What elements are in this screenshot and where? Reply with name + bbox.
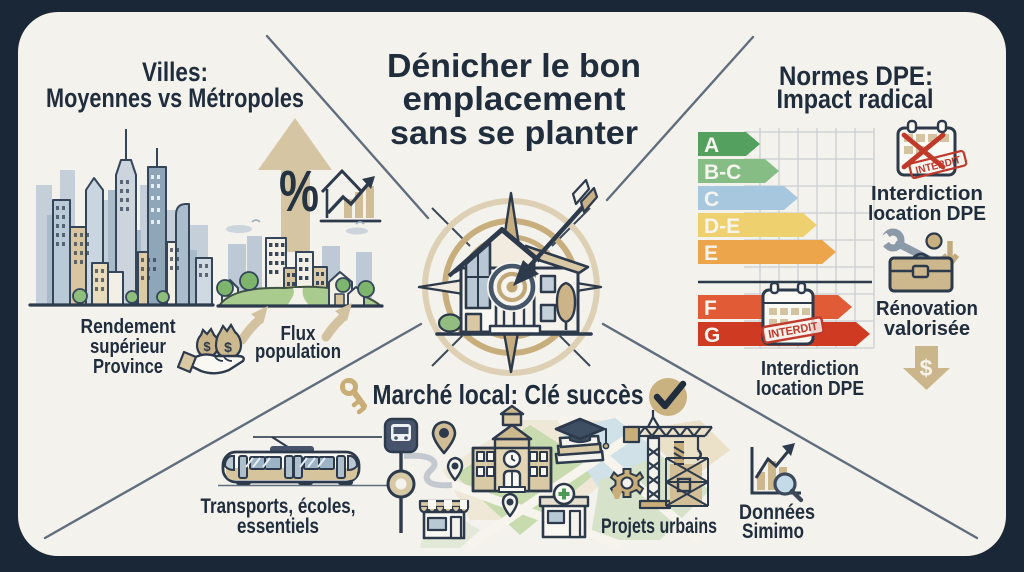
svg-text:emplacement: emplacement [403,80,626,117]
svg-text:A: A [704,134,719,157]
svg-text:D-E: D-E [704,215,740,238]
svg-text:supérieur: supérieur [90,336,166,358]
svg-text:%: % [279,159,319,224]
svg-text:Dénicher le bon: Dénicher le bon [387,47,641,84]
svg-text:sans se planter: sans se planter [390,114,638,151]
svg-text:essentiels: essentiels [237,515,319,538]
svg-text:$: $ [203,339,211,354]
svg-text:location DPE: location DPE [868,203,986,225]
svg-text:E: E [704,242,718,265]
svg-text:location DPE: location DPE [756,378,864,400]
svg-text:population: population [255,341,341,363]
svg-text:Projets urbains: Projets urbains [601,515,717,538]
svg-text:Marché local: Clé succès: Marché local: Clé succès [373,379,644,410]
svg-text:Simimo: Simimo [742,520,804,543]
svg-text:valorisée: valorisée [884,318,970,340]
svg-text:$: $ [920,355,933,381]
svg-text:Impact radical: Impact radical [777,84,934,114]
svg-text:Interdiction: Interdiction [761,358,859,380]
svg-text:F: F [704,297,717,320]
svg-text:C: C [704,188,719,211]
svg-text:B-C: B-C [704,161,741,184]
svg-text:Moyennes vs Métropoles: Moyennes vs Métropoles [46,83,304,113]
svg-text:Rendement: Rendement [81,316,176,338]
svg-text:Rénovation: Rénovation [876,298,978,320]
svg-text:Interdiction: Interdiction [871,183,983,205]
svg-text:G: G [704,324,720,347]
svg-text:Province: Province [93,356,163,378]
svg-text:$: $ [224,339,232,355]
